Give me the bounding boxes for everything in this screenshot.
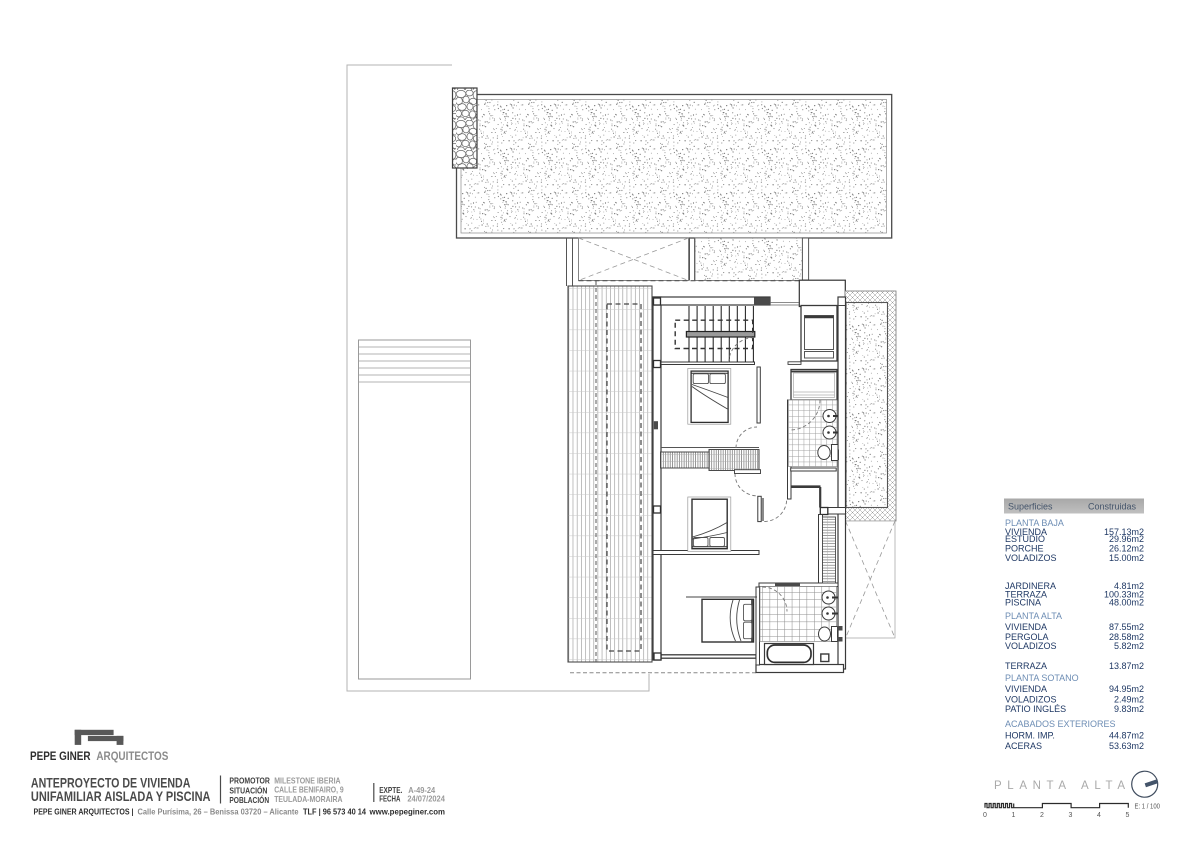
svg-text:A-49-24: A-49-24 bbox=[408, 786, 435, 795]
svg-text:29.96m2: 29.96m2 bbox=[1109, 534, 1144, 544]
svg-text:4: 4 bbox=[1097, 812, 1101, 819]
svg-text:5: 5 bbox=[1126, 812, 1130, 819]
svg-text:PLANTA ALTA: PLANTA ALTA bbox=[1005, 611, 1062, 621]
svg-text:VIVIENDA: VIVIENDA bbox=[1005, 622, 1047, 632]
svg-text:94.95m2: 94.95m2 bbox=[1109, 684, 1144, 694]
svg-text:PORCHE: PORCHE bbox=[1005, 544, 1044, 554]
svg-text:2: 2 bbox=[1040, 812, 1044, 819]
svg-text:44.87m2: 44.87m2 bbox=[1109, 731, 1144, 741]
svg-text:9.83m2: 9.83m2 bbox=[1114, 704, 1144, 714]
svg-text:48.00m2: 48.00m2 bbox=[1109, 598, 1144, 608]
svg-text:EXPTE.: EXPTE. bbox=[379, 786, 402, 795]
svg-text:53.63m2: 53.63m2 bbox=[1109, 741, 1144, 751]
svg-text:5.82m2: 5.82m2 bbox=[1114, 641, 1144, 651]
svg-text:87.55m2: 87.55m2 bbox=[1109, 622, 1144, 632]
svg-text:PLANTA SOTANO: PLANTA SOTANO bbox=[1005, 673, 1079, 683]
svg-text:26.12m2: 26.12m2 bbox=[1109, 544, 1144, 554]
svg-text:VOLADIZOS: VOLADIZOS bbox=[1005, 553, 1057, 563]
svg-text:PROMOTOR: PROMOTOR bbox=[229, 777, 270, 786]
svg-text:Construidas: Construidas bbox=[1088, 502, 1137, 512]
svg-text:CALLE BENIFAIRO, 9: CALLE BENIFAIRO, 9 bbox=[274, 786, 344, 795]
svg-text:www.pepeginer.com: www.pepeginer.com bbox=[369, 806, 446, 816]
svg-text:FECHA: FECHA bbox=[379, 795, 400, 804]
svg-text:1: 1 bbox=[1012, 812, 1016, 819]
svg-text:Superficies: Superficies bbox=[1008, 502, 1053, 512]
svg-text:TERRAZA: TERRAZA bbox=[1005, 661, 1047, 671]
svg-text:PATIO INGLÉS: PATIO INGLÉS bbox=[1005, 704, 1066, 714]
svg-text:ACABADOS EXTERIORES: ACABADOS EXTERIORES bbox=[1005, 719, 1116, 729]
svg-text:SITUACIÓN: SITUACIÓN bbox=[229, 784, 267, 795]
svg-text:24/07/2024: 24/07/2024 bbox=[407, 795, 445, 804]
svg-text:ESTUDIO: ESTUDIO bbox=[1005, 534, 1045, 544]
svg-text:Calle Purísima, 26 – Benissa 0: Calle Purísima, 26 – Benissa 03720 – Ali… bbox=[138, 806, 299, 816]
svg-text:PEPE GINER: PEPE GINER bbox=[30, 750, 91, 763]
svg-text:2.49m2: 2.49m2 bbox=[1114, 695, 1144, 705]
svg-text:HORM. IMP.: HORM. IMP. bbox=[1005, 731, 1055, 741]
svg-text:VIVIENDA: VIVIENDA bbox=[1005, 684, 1047, 694]
svg-text:POBLACIÓN: POBLACIÓN bbox=[229, 794, 269, 805]
svg-text:3: 3 bbox=[1069, 812, 1073, 819]
svg-text:MILESTONE IBERIA: MILESTONE IBERIA bbox=[274, 776, 340, 785]
svg-text:PEPE GINER ARQUITECTOS |: PEPE GINER ARQUITECTOS | bbox=[34, 806, 134, 816]
svg-text:TEULADA-MORAIRA: TEULADA-MORAIRA bbox=[274, 795, 342, 804]
svg-text:13.87m2: 13.87m2 bbox=[1109, 661, 1144, 671]
svg-text:ACERAS: ACERAS bbox=[1005, 741, 1042, 751]
svg-text:ARQUITECTOS: ARQUITECTOS bbox=[96, 750, 168, 763]
svg-text:E: 1 / 100: E: 1 / 100 bbox=[1135, 804, 1161, 811]
svg-text:15.00m2: 15.00m2 bbox=[1109, 553, 1144, 563]
svg-text:UNIFAMILIAR AISLADA Y PISCINA: UNIFAMILIAR AISLADA Y PISCINA bbox=[31, 788, 211, 804]
svg-text:PISCINA: PISCINA bbox=[1005, 598, 1041, 608]
svg-text:VOLADIZOS: VOLADIZOS bbox=[1005, 641, 1057, 651]
svg-text:0: 0 bbox=[983, 812, 987, 819]
svg-text:VOLADIZOS: VOLADIZOS bbox=[1005, 695, 1057, 705]
svg-text:TLF | 96 573 40 14: TLF | 96 573 40 14 bbox=[303, 806, 366, 816]
